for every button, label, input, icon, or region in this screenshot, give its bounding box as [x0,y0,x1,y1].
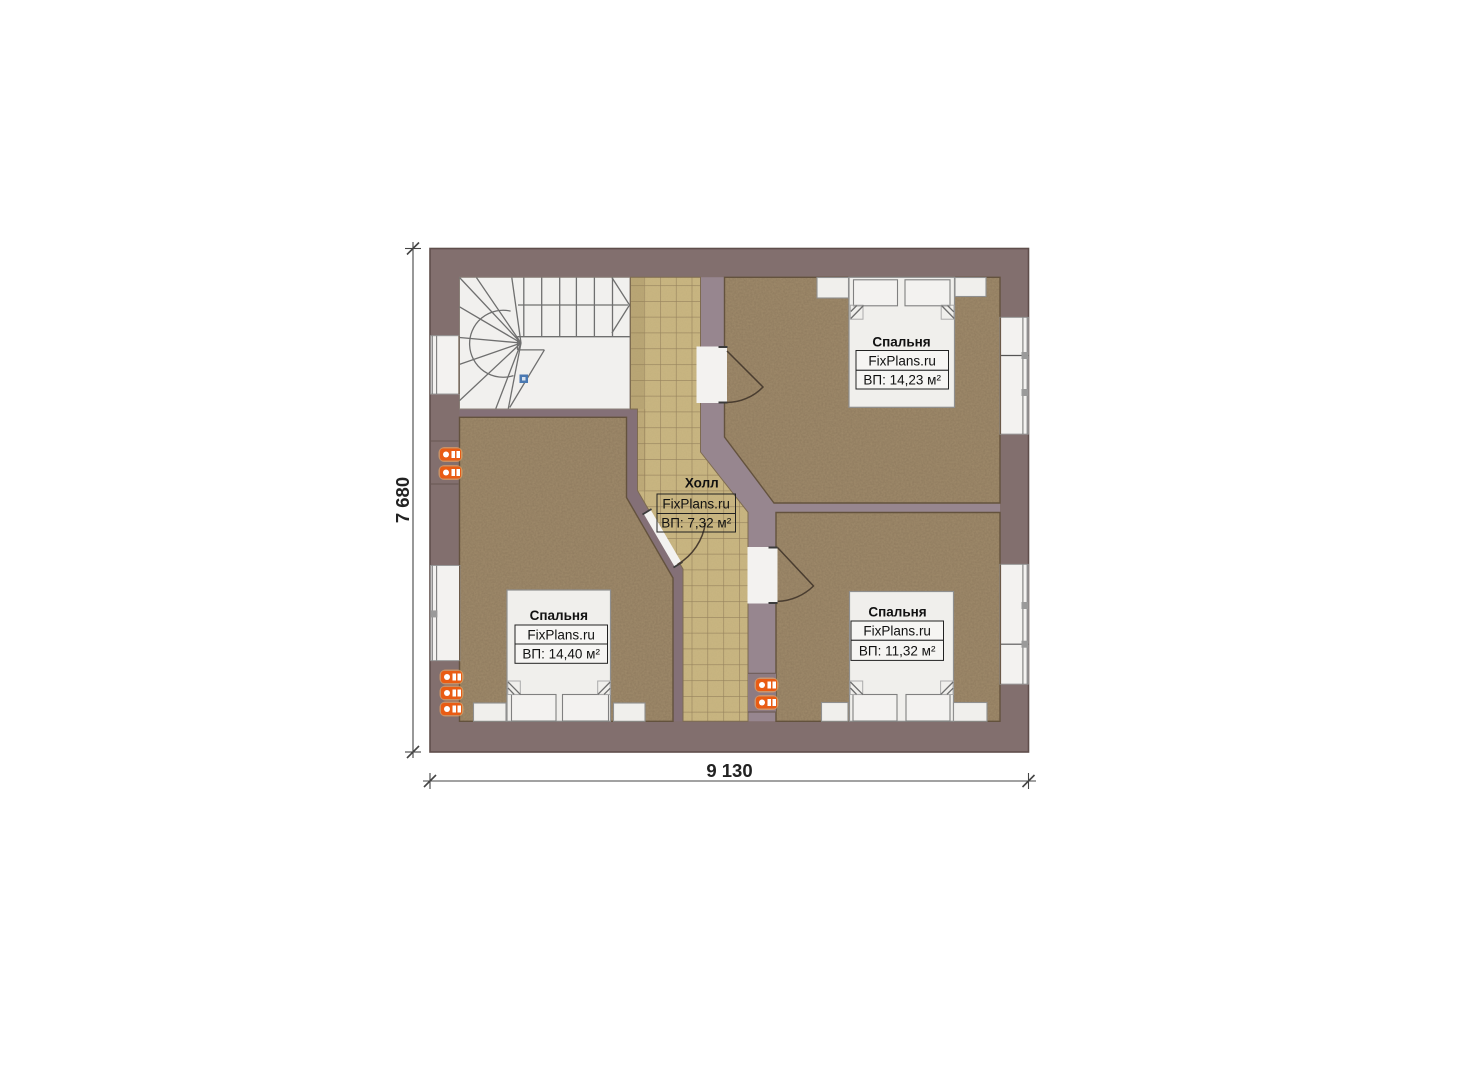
svg-text:FixPlans.ru: FixPlans.ru [527,627,595,642]
svg-text:FixPlans.ru: FixPlans.ru [662,497,730,512]
svg-text:7 680: 7 680 [392,477,413,523]
svg-text:ВП: 14,23 м²: ВП: 14,23 м² [863,372,941,387]
svg-text:Спальня: Спальня [530,608,588,623]
svg-text:Холл: Холл [685,476,719,491]
svg-text:ВП: 11,32 м²: ВП: 11,32 м² [859,643,936,658]
svg-text:FixPlans.ru: FixPlans.ru [863,624,931,639]
svg-text:ВП: 7,32 м²: ВП: 7,32 м² [661,516,732,531]
svg-text:Спальня: Спальня [872,335,930,350]
svg-text:9 130: 9 130 [706,760,752,781]
svg-text:FixPlans.ru: FixPlans.ru [868,353,936,368]
svg-text:Спальня: Спальня [868,605,926,620]
svg-text:ВП: 14,40 м²: ВП: 14,40 м² [522,647,600,662]
